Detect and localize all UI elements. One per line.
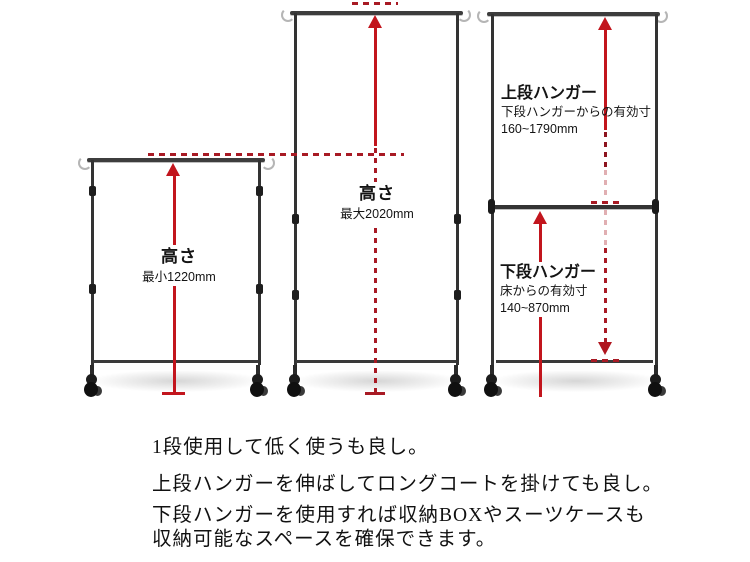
floor-reference-dashes (591, 359, 620, 362)
top-reference-dashed-line (352, 2, 398, 5)
lower-hanger-annotation: 下段ハンガー 床からの有効寸 140~870mm (497, 262, 599, 317)
upper-hanger-range: 160~1790mm (501, 122, 651, 136)
min-height-arrow-base (162, 392, 185, 395)
extension-dashed-fade (604, 210, 607, 248)
product-dimension-diagram: 高さ 最小1220mm 高さ 最大2020mm 上段ハンガー 下段ハンガーからの… (0, 0, 750, 562)
max-height-reference-dashed-line (148, 153, 404, 156)
max-height-label: 高さ (327, 184, 427, 204)
min-height-label: 高さ (134, 247, 224, 267)
usage-description: 1段使用して低く使うも良し。 上段ハンガーを伸ばしてロングコートを掛けても良し。… (152, 436, 663, 552)
upper-hanger-dashed-fade (604, 170, 607, 200)
lower-hanger-range: 140~870mm (500, 301, 596, 315)
lower-hanger-label: 下段ハンガー (500, 264, 596, 282)
max-height-arrow-base (365, 392, 385, 395)
upper-hanger-annotation: 上段ハンガー 下段ハンガーからの有効寸 160~1790mm (501, 85, 651, 136)
usage-line-2: 上段ハンガーを伸ばしてロングコートを掛けても良し。 (152, 473, 663, 497)
min-height-annotation: 高さ 最小1220mm (131, 245, 227, 286)
min-height-value: 最小1220mm (134, 270, 224, 284)
upper-hanger-desc: 下段ハンガーからの有効寸 (501, 105, 651, 119)
usage-line-1: 1段使用して低く使うも良し。 (152, 436, 663, 460)
max-height-value: 最大2020mm (327, 207, 427, 221)
max-height-arrow-line (374, 27, 377, 146)
extension-dashed-line (604, 248, 607, 342)
upper-hanger-dashed-line (604, 132, 607, 170)
usage-line-4: 収納可能なスペースを確保できます。 (152, 528, 663, 552)
max-height-annotation: 高さ 最大2020mm (324, 182, 430, 223)
extension-arrowhead-icon (598, 342, 612, 355)
lower-bar-reference-dashes (591, 201, 620, 204)
upper-hanger-label: 上段ハンガー (501, 85, 651, 103)
lower-hanger-desc: 床からの有効寸 (500, 284, 596, 298)
usage-line-3: 下段ハンガーを使用すれば収納BOXやスーツケースも (152, 504, 663, 528)
